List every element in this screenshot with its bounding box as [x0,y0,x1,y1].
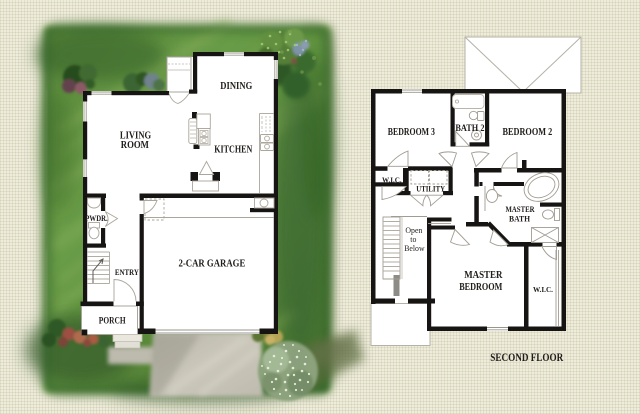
svg-text:BATH: BATH [509,214,531,223]
svg-text:SECOND FLOOR: SECOND FLOOR [490,351,563,364]
svg-text:2-CAR GARAGE: 2-CAR GARAGE [179,259,246,270]
svg-text:DINING: DINING [220,81,252,92]
svg-text:Below: Below [404,244,425,253]
svg-text:BATH 2: BATH 2 [455,123,484,133]
svg-text:to: to [410,235,416,244]
svg-text:BEDROOM 2: BEDROOM 2 [503,126,553,137]
svg-text:W.I.C.: W.I.C. [533,285,553,294]
svg-text:MASTER: MASTER [506,204,535,214]
svg-text:BEDROOM: BEDROOM [459,281,503,292]
svg-text:PWDR.: PWDR. [85,214,108,224]
svg-text:UTILITY: UTILITY [416,184,445,194]
svg-text:MASTER: MASTER [464,271,502,282]
svg-text:KITCHEN: KITCHEN [214,144,252,155]
svg-text:ROOM: ROOM [121,141,149,152]
svg-text:PORCH: PORCH [99,316,126,326]
svg-text:ENTRY: ENTRY [115,267,139,277]
svg-text:Open: Open [405,226,422,235]
svg-text:BEDROOM 3: BEDROOM 3 [388,126,436,137]
svg-text:W.I.C.: W.I.C. [382,175,402,184]
